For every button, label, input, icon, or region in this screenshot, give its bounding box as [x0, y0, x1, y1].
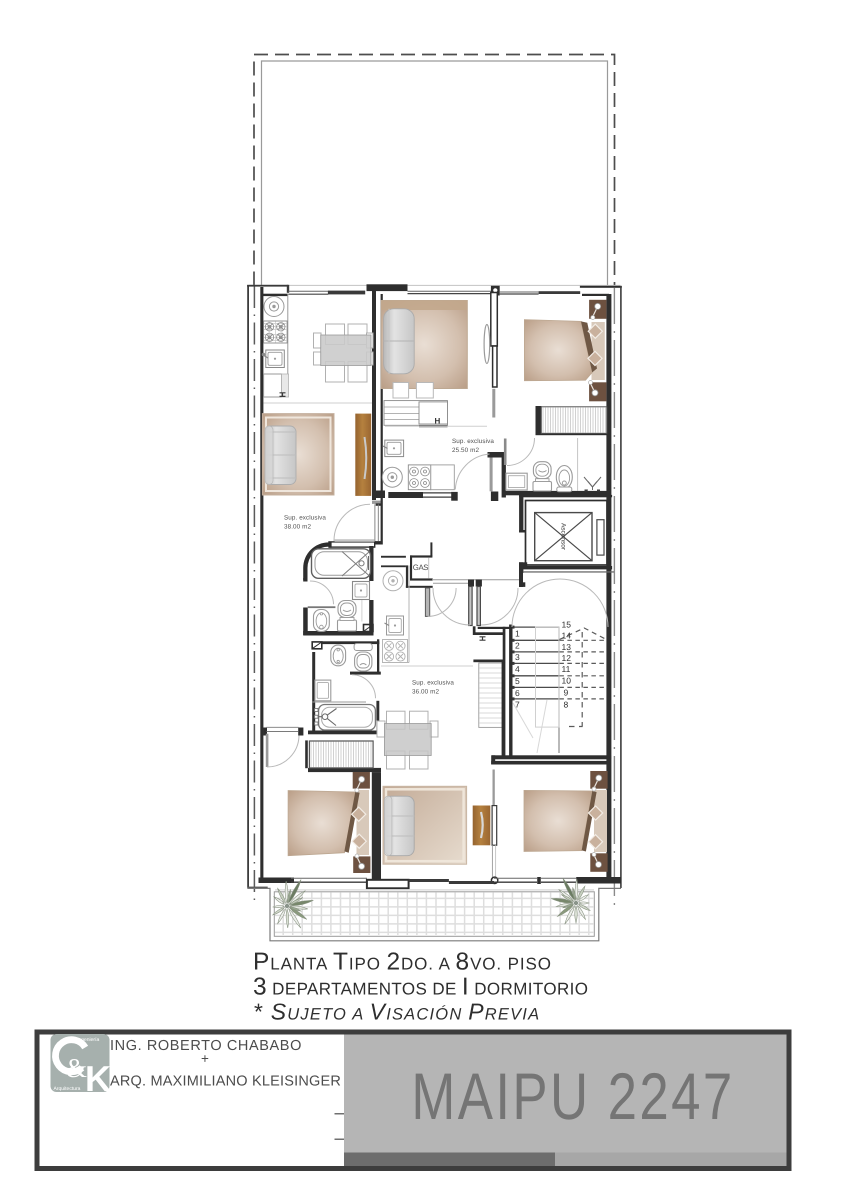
svg-text:3: 3	[515, 652, 520, 662]
svg-text:12: 12	[562, 653, 572, 663]
svg-text:8: 8	[564, 700, 569, 710]
svg-text:6: 6	[515, 688, 520, 698]
svg-text:Arquitectura: Arquitectura	[54, 1086, 81, 1092]
svg-text:14: 14	[562, 631, 572, 641]
svg-text:9: 9	[564, 687, 569, 697]
svg-text:13: 13	[562, 642, 572, 652]
svg-text:H: H	[435, 417, 441, 426]
svg-text:7: 7	[515, 699, 520, 709]
svg-text:MAIPU 2247: MAIPU 2247	[411, 1059, 734, 1133]
svg-text:Sup. exclusiva: Sup. exclusiva	[452, 438, 494, 445]
svg-text:K: K	[85, 1058, 111, 1099]
svg-text:11: 11	[562, 664, 571, 674]
svg-text:&: &	[66, 1053, 87, 1083]
svg-text:ARQ. MAXIMILIANO KLEISINGER: ARQ. MAXIMILIANO KLEISINGER	[110, 1074, 341, 1090]
svg-text:1: 1	[515, 629, 520, 639]
svg-text:36.00 m2: 36.00 m2	[412, 689, 439, 696]
svg-text:4: 4	[515, 664, 520, 674]
svg-text:2: 2	[515, 641, 520, 651]
svg-text:Ingeniería: Ingeniería	[77, 1037, 99, 1043]
svg-text:Ascensor: Ascensor	[560, 523, 567, 551]
svg-text:Sup. exclusiva: Sup. exclusiva	[284, 515, 326, 522]
svg-text:15: 15	[562, 619, 572, 629]
svg-text:25.50 m2: 25.50 m2	[452, 447, 479, 454]
svg-text:38.00 m2: 38.00 m2	[284, 524, 311, 531]
svg-text:10: 10	[562, 676, 572, 686]
svg-text:+: +	[201, 1051, 209, 1066]
svg-text:5: 5	[515, 676, 520, 686]
svg-text:GAS: GAS	[413, 563, 428, 572]
svg-text:Sup. exclusiva: Sup. exclusiva	[412, 680, 454, 687]
